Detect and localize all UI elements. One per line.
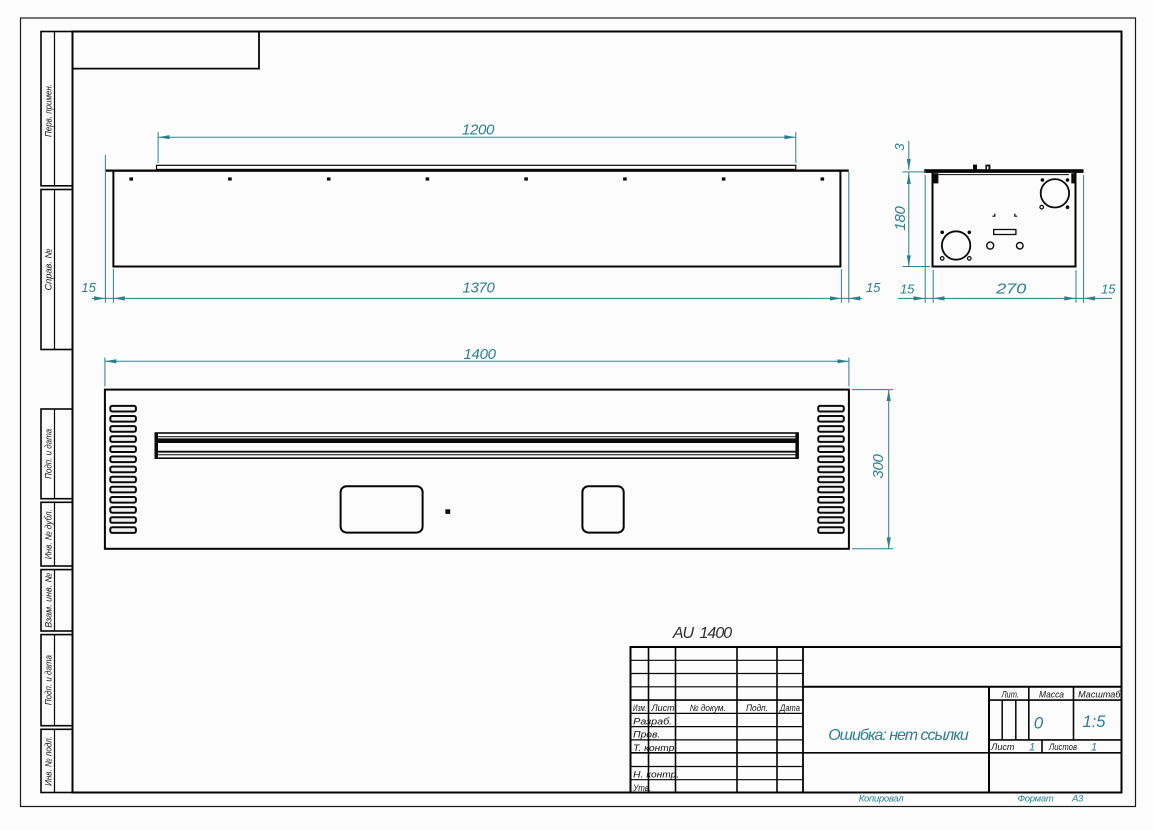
svg-text:Изм.: Изм. [633,703,647,713]
svg-text:Утв.: Утв. [632,783,651,793]
svg-text:15: 15 [900,282,915,297]
svg-text:Т. контр.: Т. контр. [633,743,677,753]
svg-text:Подп. и дата: Подп. и дата [43,429,53,479]
svg-text:Дата: Дата [779,703,800,713]
svg-text:300: 300 [870,453,887,478]
svg-text:0: 0 [1034,714,1044,733]
svg-text:Инв. № подл.: Инв. № подл. [43,736,53,786]
svg-text:Инв. № дубл.: Инв. № дубл. [43,509,53,559]
svg-text:1400: 1400 [464,346,497,363]
svg-text:3: 3 [892,143,907,151]
svg-text:Справ. №: Справ. № [43,248,53,290]
svg-text:1370: 1370 [462,280,495,297]
svg-text:15: 15 [1101,282,1116,297]
svg-text:1: 1 [1029,742,1035,754]
svg-text:1:5: 1:5 [1083,713,1107,731]
svg-text:A3: A3 [1071,793,1084,804]
svg-text:Масштаб: Масштаб [1078,690,1121,700]
svg-text:Листов: Листов [1048,742,1077,752]
svg-text:Лист: Лист [651,703,675,713]
svg-text:1200: 1200 [462,122,495,139]
svg-text:Масса: Масса [1039,690,1064,700]
svg-text:15: 15 [866,280,881,295]
svg-text:Разраб.: Разраб. [633,716,672,726]
svg-text:Лит.: Лит. [1001,690,1019,700]
svg-text:Ошибка: нет ссылки: Ошибка: нет ссылки [828,727,969,744]
svg-text:Формат: Формат [1018,793,1054,804]
svg-text:Подп. и дата: Подп. и дата [43,655,53,705]
svg-text:№ докум.: № докум. [690,703,726,713]
svg-text:270: 270 [995,280,1027,297]
svg-text:Копировал: Копировал [859,793,904,804]
svg-text:AU 1400: AU 1400 [672,625,732,642]
svg-text:Подп.: Подп. [746,703,768,713]
svg-text:15: 15 [81,280,96,295]
svg-text:Пров.: Пров. [633,730,660,740]
svg-text:1: 1 [1091,742,1097,754]
svg-text:Взам. инв. №: Взам. инв. № [43,573,53,628]
svg-text:Лист: Лист [990,742,1015,752]
svg-text:Н. контр.: Н. контр. [633,770,679,780]
svg-text:180: 180 [892,205,909,230]
svg-text:Перв. примен.: Перв. примен. [43,84,53,137]
